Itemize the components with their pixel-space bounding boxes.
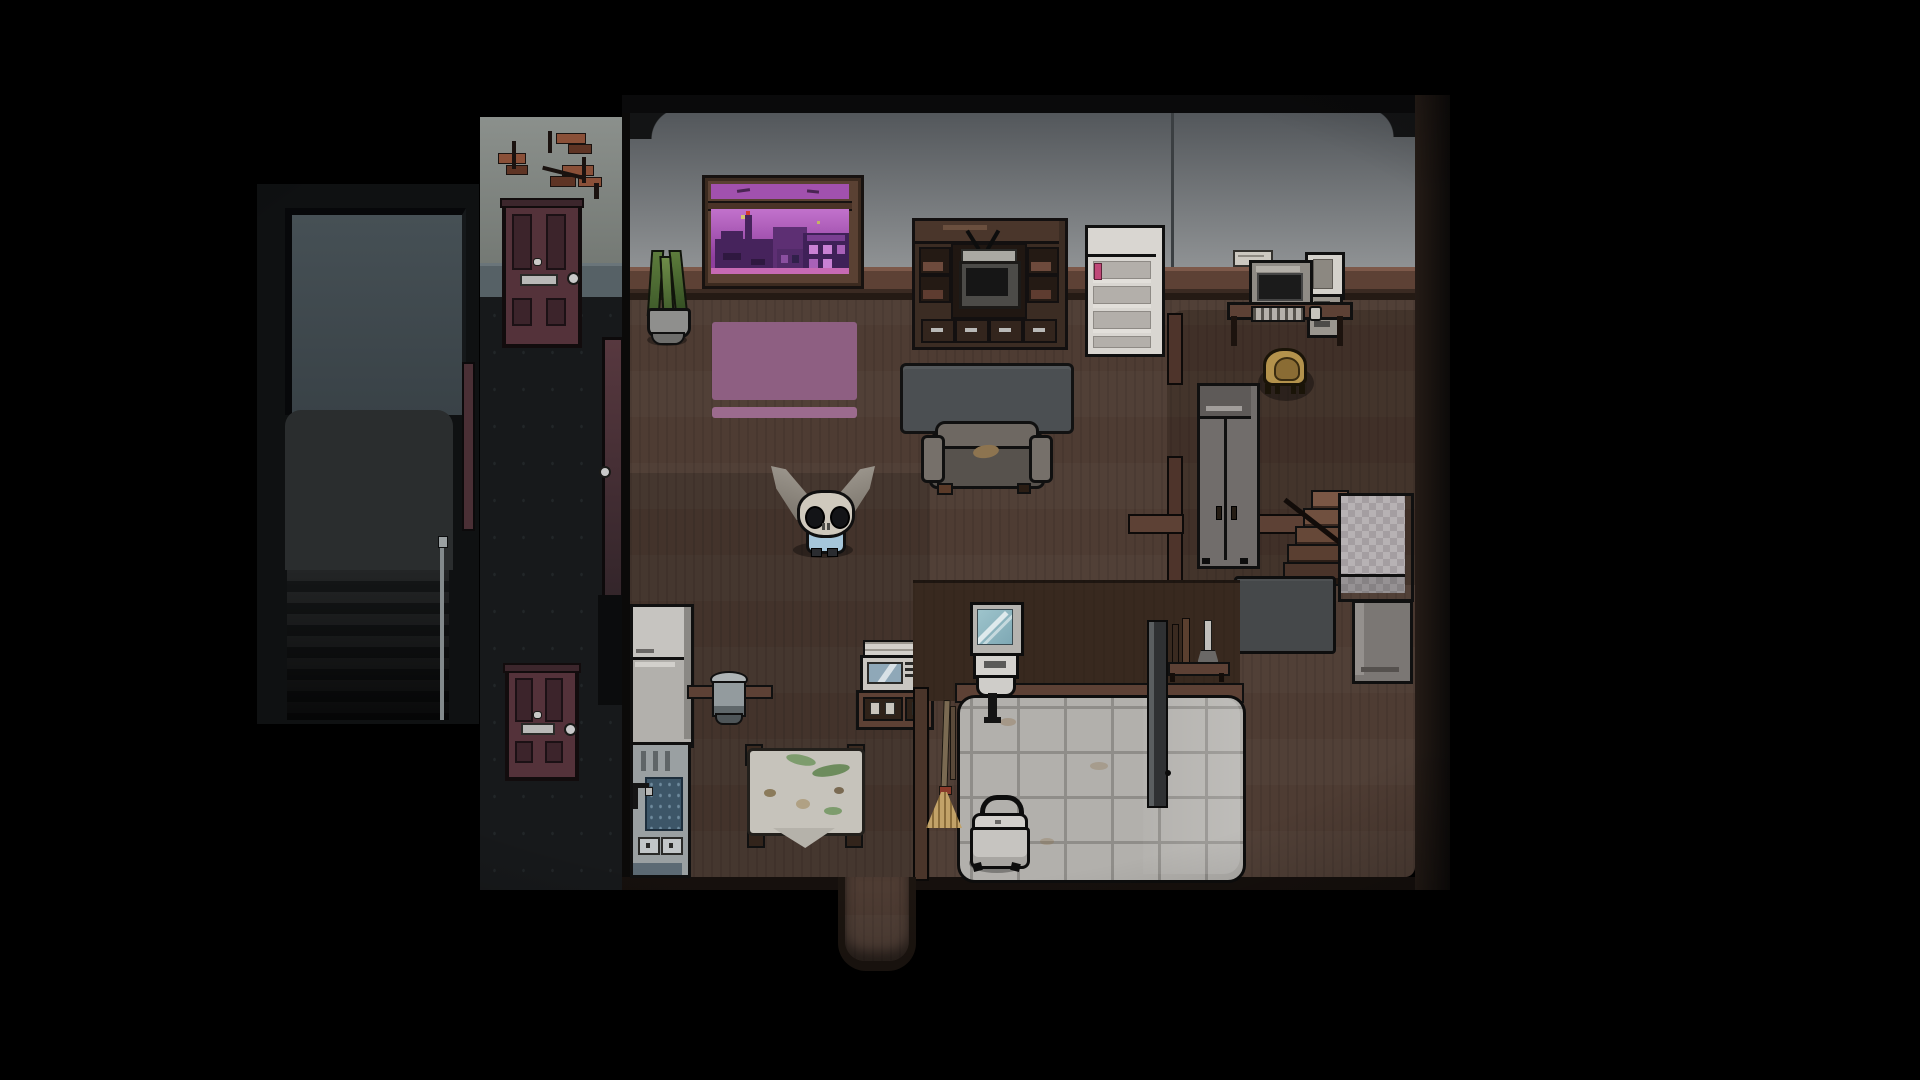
pot-body	[712, 681, 746, 717]
door-knob	[599, 466, 611, 478]
apartment-border-left	[622, 113, 630, 877]
stairwell-stairs[interactable]	[287, 570, 449, 720]
apartment	[630, 113, 1415, 877]
apartment-outer-wall-right	[1415, 95, 1450, 890]
microwave[interactable]	[860, 640, 918, 690]
wall-corner-right	[1365, 113, 1415, 137]
faucet-tip	[645, 787, 653, 796]
fridge-top-door	[633, 607, 685, 660]
microwave-window	[867, 662, 903, 684]
microwave-buttons	[905, 662, 913, 680]
stairs-darkness	[287, 570, 449, 720]
city-window[interactable]	[702, 175, 864, 289]
pot-base	[715, 713, 743, 725]
stairwell-door-edge	[462, 362, 475, 531]
console-cubby	[919, 275, 951, 303]
wood-stick	[1182, 618, 1190, 666]
wardrobe-door-split	[1224, 419, 1227, 560]
beacon-red	[746, 211, 750, 215]
apartment-border-top	[622, 95, 1450, 113]
couch[interactable]	[921, 421, 1047, 491]
bed-footer	[1341, 577, 1405, 593]
broom-bristles	[926, 792, 962, 828]
console-drawer[interactable]	[921, 319, 955, 343]
bathroom-sink[interactable]	[971, 653, 1017, 699]
player-skull-head	[797, 490, 855, 538]
stand-leg	[1219, 673, 1224, 682]
crt-tv[interactable]	[959, 249, 1015, 307]
stairwell-landing-floor	[285, 410, 453, 570]
bird-icon	[737, 188, 750, 193]
wardrobe-foot	[1240, 558, 1248, 564]
tv-screen	[959, 261, 1021, 309]
sink-drawer[interactable]	[661, 837, 683, 855]
bathroom-mirror[interactable]	[970, 602, 1024, 656]
player-character[interactable]	[771, 462, 875, 560]
factory-roof	[721, 231, 743, 241]
hallway-upper-door[interactable]	[502, 202, 582, 348]
wardrobe-top	[1200, 386, 1251, 419]
plant-pot-base	[651, 332, 685, 345]
pink-rug	[712, 322, 857, 400]
sink-unit[interactable]	[630, 742, 691, 878]
laundry-basket[interactable]	[969, 795, 1025, 877]
potted-plant[interactable]	[641, 250, 691, 348]
couch-arm-left	[921, 435, 945, 483]
sink-basin	[645, 777, 683, 831]
console-drawer[interactable]	[1023, 319, 1057, 343]
factory-window	[751, 259, 765, 265]
mouse[interactable]	[1309, 306, 1322, 321]
kitchen-table[interactable]	[743, 742, 865, 848]
tablecloth	[747, 748, 865, 836]
bird-icon	[807, 189, 819, 193]
console-cubby	[1027, 247, 1059, 275]
divider-handle	[1165, 770, 1171, 776]
shelf-opening	[1093, 286, 1151, 308]
factory-window	[723, 253, 741, 260]
fridge[interactable]	[630, 604, 694, 748]
wall-seam	[1171, 113, 1174, 267]
wardrobe[interactable]	[1197, 383, 1260, 569]
shelf-opening	[1093, 311, 1151, 333]
sink-drawer[interactable]	[638, 837, 660, 855]
desk-leg	[1337, 316, 1343, 346]
stand-leg	[1170, 673, 1175, 682]
monitor-screen	[1257, 273, 1303, 301]
plunger-stand[interactable]	[1168, 618, 1226, 682]
shelf-opening	[1093, 336, 1151, 348]
couch-arm-right	[1029, 435, 1053, 483]
wardrobe-foot	[1202, 558, 1210, 564]
wall-corner-left	[630, 113, 682, 139]
star	[817, 221, 820, 224]
slate-panel	[1234, 576, 1336, 654]
player-nose	[822, 523, 825, 530]
wood-stick	[1172, 624, 1179, 666]
player-foot	[811, 548, 822, 557]
hallway	[478, 95, 630, 890]
bed[interactable]	[1338, 493, 1414, 602]
shelf-top-cabinet	[1088, 228, 1156, 257]
plunger-handle	[1204, 620, 1212, 654]
computer-desk[interactable]	[1227, 250, 1347, 346]
skyline-base-glow	[711, 268, 849, 274]
faucet-pipe	[633, 783, 638, 809]
desk-leg	[1231, 316, 1237, 346]
shelf-opening	[1093, 261, 1151, 283]
sink-pipe	[988, 693, 997, 719]
apartment-front-door[interactable]	[602, 337, 624, 603]
foot-chest[interactable]	[1352, 600, 1413, 684]
stair-rail-post	[438, 536, 448, 548]
window-transom	[711, 184, 849, 199]
cabinet-knob	[870, 702, 880, 715]
front-door-shadow	[598, 595, 622, 705]
partition-wall	[1167, 313, 1183, 385]
tile-stain	[1090, 762, 1108, 770]
pink-rug-stripe	[712, 407, 857, 418]
stairwell-room	[257, 184, 479, 724]
white-shelf[interactable]	[1085, 225, 1165, 357]
alcove-stairs-down[interactable]	[1283, 490, 1345, 586]
stair-handrail	[440, 544, 444, 720]
dish-rack	[641, 751, 675, 771]
bed-blanket	[1341, 496, 1405, 574]
cabinet-knob	[885, 702, 895, 715]
fridge-lower-highlight	[635, 662, 675, 667]
cloth-drape	[773, 828, 835, 848]
player-eye-right	[830, 506, 850, 529]
tile-stain	[1000, 718, 1016, 726]
wardrobe-handle	[1231, 506, 1237, 520]
pink-book	[1094, 263, 1102, 280]
wardrobe-handle	[1216, 506, 1222, 520]
tile-stain	[1040, 838, 1054, 845]
hallway-lower-door[interactable]	[505, 667, 579, 781]
sink-base	[633, 863, 682, 875]
window-pane	[711, 209, 849, 274]
entry-stub[interactable]	[845, 877, 909, 961]
console-cubby	[1027, 275, 1059, 303]
keyboard[interactable]	[1251, 306, 1305, 322]
partition-counter	[1128, 514, 1184, 534]
wicker-chair[interactable]	[1263, 348, 1307, 394]
broom[interactable]	[922, 700, 962, 832]
stairwell-wall-panel	[285, 208, 466, 415]
shower-divider[interactable]	[1147, 620, 1168, 808]
smokestack	[745, 215, 752, 241]
console-drawer[interactable]	[989, 319, 1023, 343]
console-drawer[interactable]	[955, 319, 989, 343]
couch-foot	[1017, 483, 1031, 494]
sink-pipe-foot	[984, 717, 1001, 723]
game-viewport	[0, 0, 1920, 1080]
player-foot	[827, 548, 838, 557]
console-cubby	[919, 247, 951, 275]
couch-foot	[937, 483, 953, 495]
console-top	[915, 221, 1059, 244]
fridge-side-shade	[684, 607, 691, 739]
stock-pot[interactable]	[710, 671, 744, 725]
tv-console[interactable]	[912, 218, 1068, 350]
player-nose	[827, 523, 830, 530]
